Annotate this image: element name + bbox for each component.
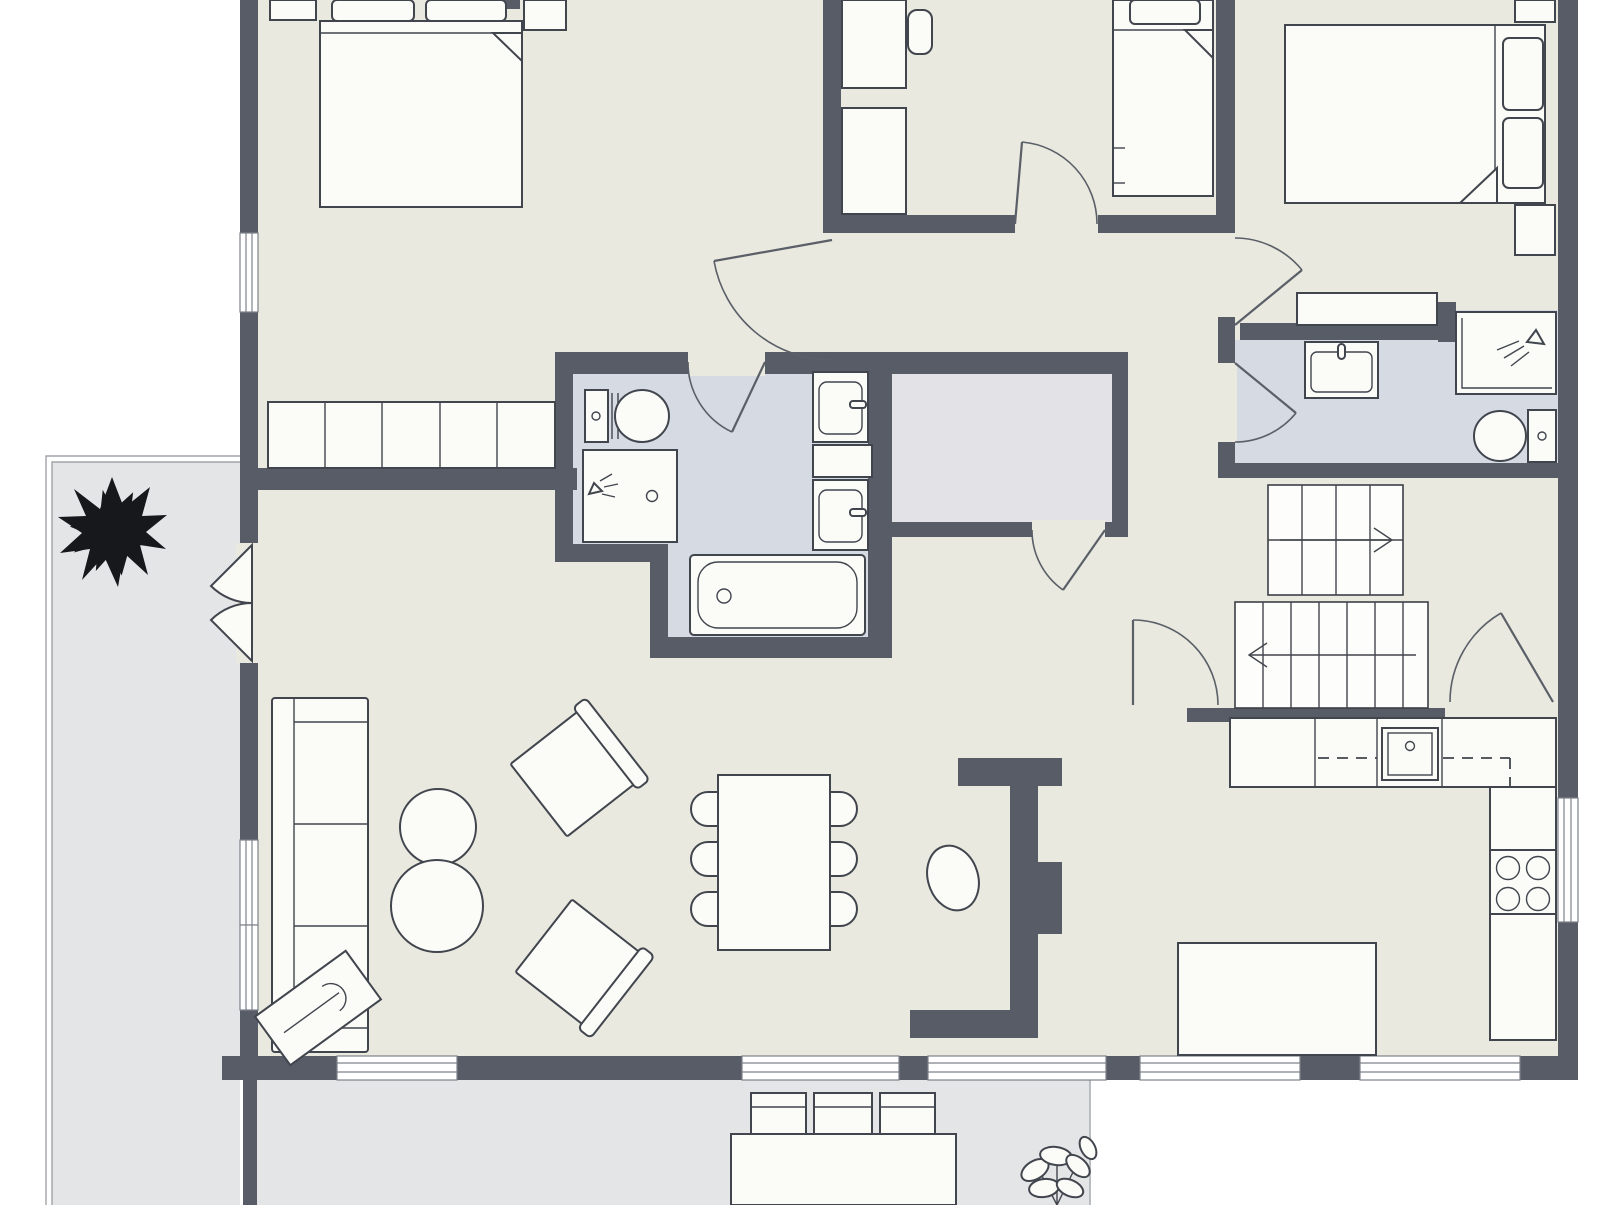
wall-bed1-south [240, 468, 577, 490]
dining-chair-icon [830, 792, 857, 826]
floor-plan-page [0, 0, 1606, 1205]
door-gap-storage [1032, 520, 1105, 539]
console-shelf-icon [1297, 293, 1437, 325]
dining-chair-icon [691, 792, 718, 826]
outdoor-chair [751, 1093, 806, 1134]
shelf-icon [813, 445, 872, 477]
wall-flange [222, 1056, 243, 1080]
terrace-bottom-floor [257, 1080, 1090, 1205]
dining-chair-icon [691, 842, 718, 876]
wall-bath1-south [650, 637, 892, 658]
vanity-sink-icon [813, 480, 868, 550]
dining-table [718, 775, 830, 950]
floor-storage-room [892, 374, 1112, 522]
window [1360, 1056, 1520, 1080]
window [337, 1056, 457, 1080]
desk-chair-icon [908, 10, 932, 54]
round-coffee-table-large [391, 860, 483, 952]
stairs-upper-flight [1268, 485, 1403, 595]
kitchen-island [1178, 943, 1376, 1055]
wall-bath1-west [555, 352, 573, 562]
wall-bath2-south [1218, 463, 1578, 478]
outdoor-table [731, 1134, 956, 1205]
bathtub-icon [690, 555, 865, 635]
shower-icon [583, 450, 677, 542]
stairs-lower-flight [1235, 602, 1428, 708]
vanity-sink-icon [813, 372, 868, 442]
dining-chair-icon [691, 892, 718, 926]
kitchen-sink-icon [1382, 728, 1438, 780]
shower-icon [1456, 312, 1556, 394]
door-gap-bedroom-middle [1015, 213, 1098, 235]
dresser-icon [842, 108, 906, 214]
toilet-icon [1474, 410, 1556, 462]
nightstand-icon [270, 0, 316, 20]
double-bed-icon [320, 0, 522, 207]
nightstand-icon [1515, 205, 1555, 255]
dining-chair-icon [830, 892, 857, 926]
window [240, 840, 258, 925]
wall-storage-west [868, 352, 892, 658]
wall-bed2-bed3 [1216, 0, 1235, 233]
double-bed-icon [1285, 25, 1545, 203]
nightstand-icon [524, 0, 566, 30]
wardrobe-row-icon [268, 402, 555, 468]
window [928, 1056, 1106, 1080]
door-gap-bathroom-central [688, 350, 765, 376]
wall-bed1-bed2 [823, 0, 841, 233]
cooktop-icon [1490, 850, 1556, 914]
toilet-icon [585, 390, 669, 442]
window [240, 925, 258, 1010]
terrace-bottom [257, 1080, 1100, 1205]
window [240, 233, 258, 312]
wall-terrace-fence [243, 1078, 257, 1205]
outdoor-chair [880, 1093, 935, 1134]
nightstand-icon [1515, 0, 1555, 22]
desk-icon [842, 0, 906, 88]
round-coffee-table-small [400, 789, 476, 865]
door-gap-bathroom-right [1216, 363, 1237, 442]
vanity-sink-icon [1305, 342, 1378, 398]
room-dining [691, 775, 857, 950]
window [1558, 798, 1578, 922]
dining-chair-icon [830, 842, 857, 876]
terrace-left [46, 456, 240, 1205]
window [742, 1056, 899, 1080]
single-bed-icon [1113, 0, 1213, 196]
wall-storage-east [1112, 352, 1128, 537]
window [1140, 1056, 1300, 1080]
wall-bath2-shower-stub [1438, 302, 1456, 342]
floor-plan [0, 0, 1606, 1205]
wall-bath1-storage-north [555, 352, 1128, 374]
terrace-left-floor [52, 462, 240, 1205]
outdoor-chair [814, 1093, 872, 1134]
